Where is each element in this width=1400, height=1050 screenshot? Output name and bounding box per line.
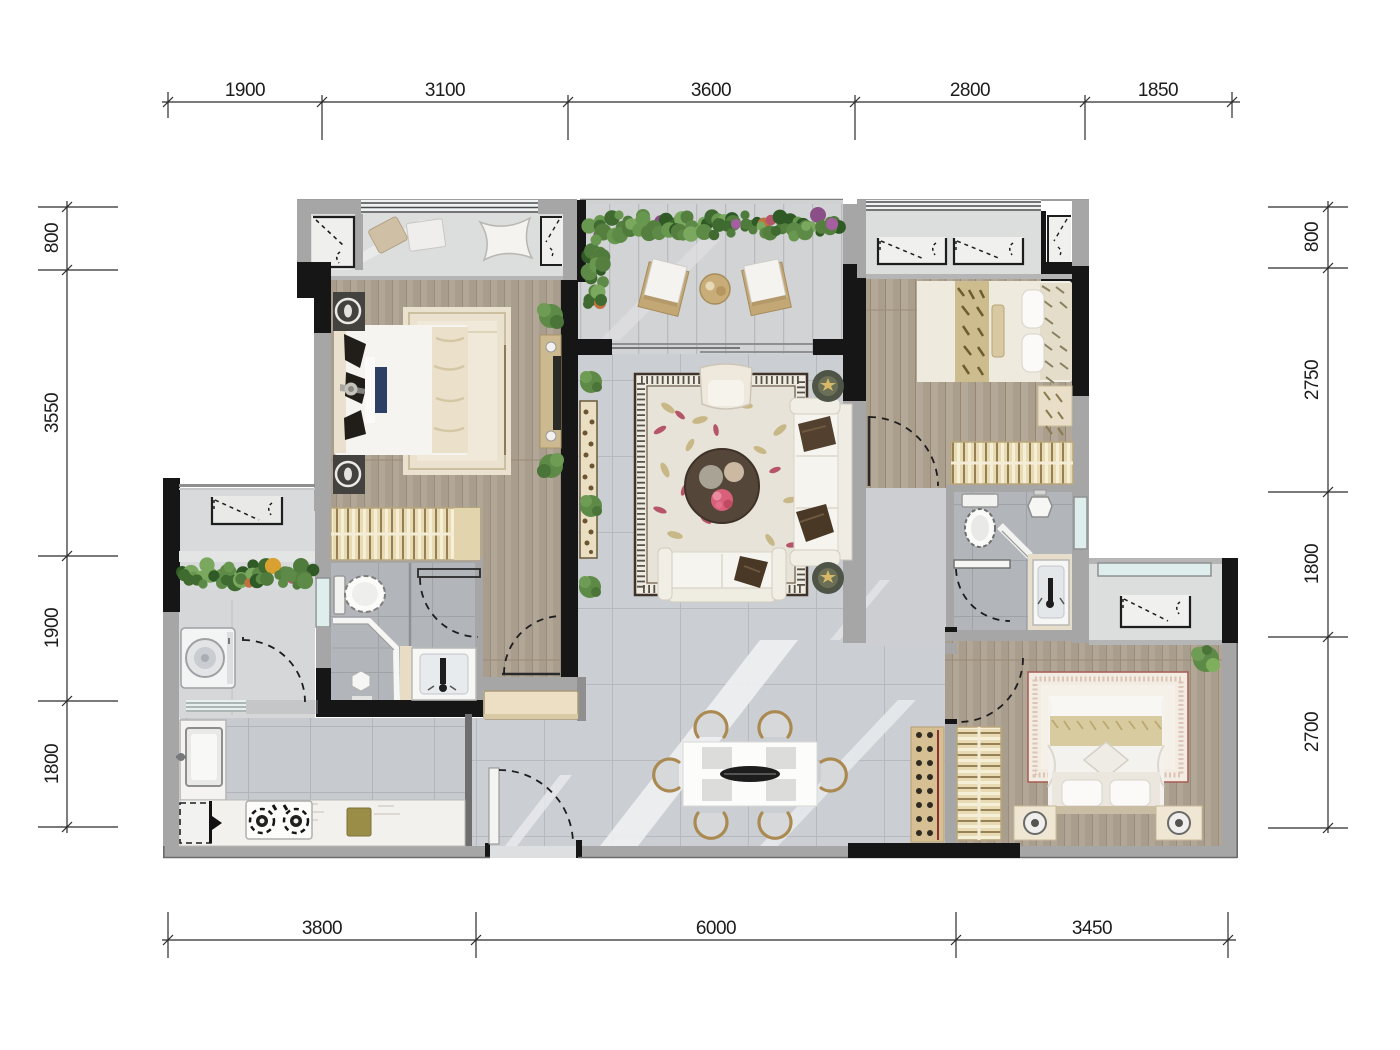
svg-text:800: 800 bbox=[1302, 222, 1323, 252]
svg-text:800: 800 bbox=[42, 223, 63, 253]
svg-text:3100: 3100 bbox=[425, 80, 465, 101]
svg-text:2750: 2750 bbox=[1302, 360, 1323, 400]
svg-text:1800: 1800 bbox=[42, 744, 63, 784]
svg-text:2700: 2700 bbox=[1302, 712, 1323, 752]
svg-text:3800: 3800 bbox=[302, 918, 342, 939]
svg-text:6000: 6000 bbox=[696, 918, 736, 939]
svg-text:3550: 3550 bbox=[42, 393, 63, 433]
svg-text:1850: 1850 bbox=[1138, 80, 1178, 101]
svg-text:3450: 3450 bbox=[1072, 918, 1112, 939]
svg-text:2800: 2800 bbox=[950, 80, 990, 101]
svg-text:1900: 1900 bbox=[42, 608, 63, 648]
svg-text:3600: 3600 bbox=[691, 80, 731, 101]
svg-text:1900: 1900 bbox=[225, 80, 265, 101]
svg-text:1800: 1800 bbox=[1302, 544, 1323, 584]
